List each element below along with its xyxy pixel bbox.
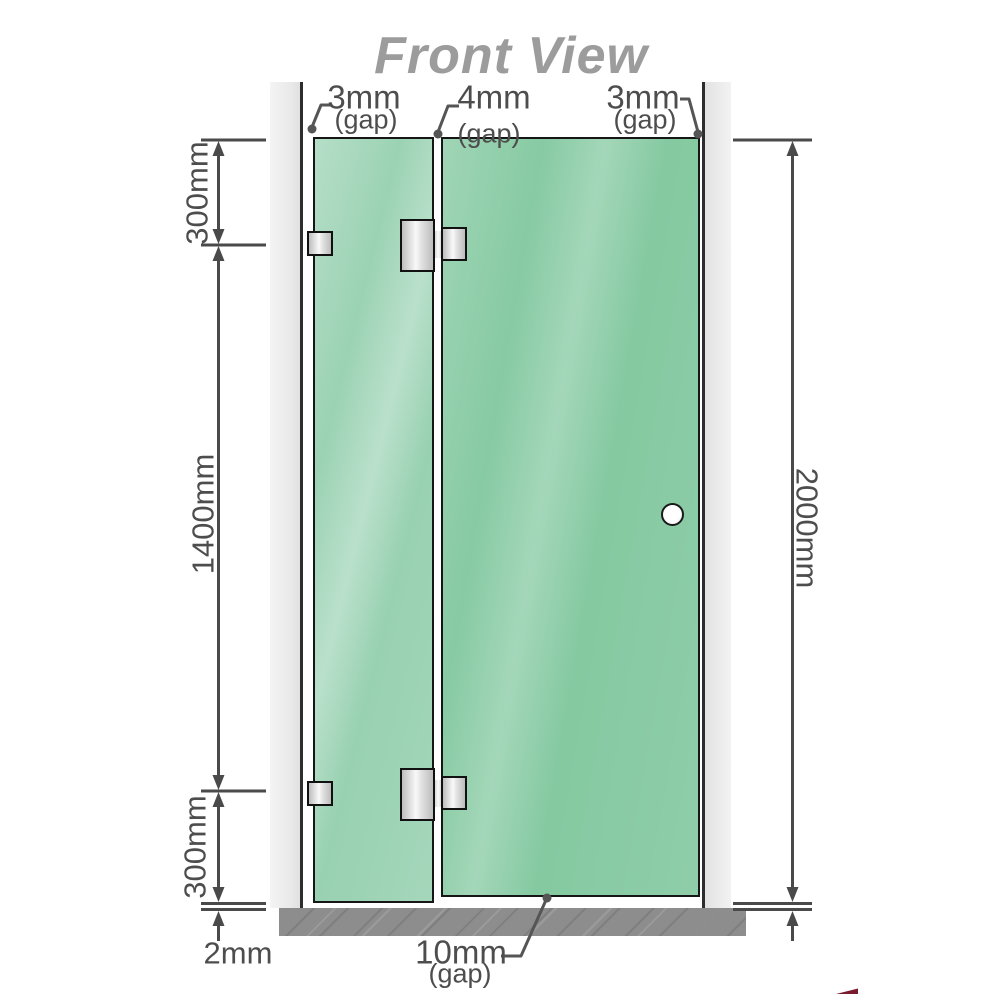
logo-fragment (836, 989, 858, 995)
dim-label-overall-height: 2000mm (792, 468, 823, 589)
dim-label-top-section: 300mm (182, 141, 213, 244)
shower-screen-front-view-diagram: Front View (0, 0, 1000, 1000)
dimension-overlay (0, 0, 1000, 1000)
gap-label-middle-value: 4mm (457, 81, 530, 114)
gap-label-right-suffix: (gap) (613, 107, 676, 134)
gap-label-middle-suffix: (gap) (457, 121, 520, 148)
gap-leader-lines (308, 99, 703, 956)
gap-label-left-suffix: (gap) (334, 107, 397, 134)
dim-label-middle-section: 1400mm (188, 454, 219, 575)
gap-label-bottom-suffix: (gap) (428, 961, 491, 988)
dim-label-bottom-section: 300mm (180, 795, 211, 898)
dim-label-floor-clearance: 2mm (204, 938, 273, 969)
